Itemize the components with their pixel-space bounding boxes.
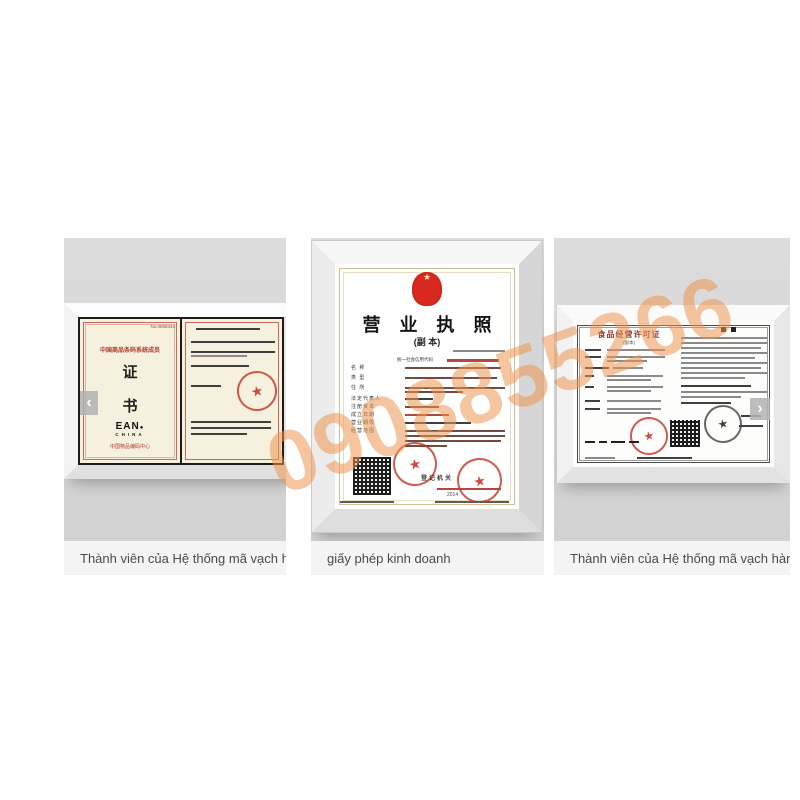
- member-line: 中国商品条码系统成员: [80, 345, 180, 354]
- license-title: 营 业 执 照: [335, 311, 519, 337]
- chevron-right-icon: ›: [757, 400, 762, 418]
- certificate-booklet: No.0658443 中国商品条码系统成员 证 书 EAN● CHINA 中国物…: [78, 317, 284, 465]
- org-line: 中国物品编码中心: [80, 443, 180, 450]
- booklet-right-page: ★: [182, 319, 282, 463]
- business-license: ★ 营 业 执 照 (副 本) 统一社会信用代码 名 称 类 型 住 所 法定代…: [335, 264, 519, 509]
- carousel-slide-business-license[interactable]: ★ 营 业 执 照 (副 本) 统一社会信用代码 名 称 类 型 住 所 法定代…: [311, 238, 544, 541]
- food-license: 食品经营许可证 (副本): [573, 321, 774, 467]
- slide-caption-1: Thành viên của Hệ thống mã vạch hàng h..…: [64, 541, 286, 575]
- picture-frame: ★ 营 业 执 照 (副 本) 统一社会信用代码 名 称 类 型 住 所 法定代…: [312, 241, 542, 532]
- ean-logo-dot: ●: [140, 425, 145, 431]
- license-title: 食品经营许可证: [583, 329, 675, 340]
- carousel-slide-food-license[interactable]: 食品经营许可证 (副本): [554, 238, 790, 541]
- national-emblem-icon: ★: [412, 272, 442, 306]
- ean-logo-sub: CHINA: [80, 432, 180, 437]
- license-subtitle: (副 本): [335, 335, 519, 348]
- prev-button[interactable]: ‹: [80, 391, 98, 415]
- next-button[interactable]: ›: [750, 398, 770, 420]
- picture-frame: 食品经营许可证 (副本): [557, 305, 790, 483]
- license-subtitle: (副本): [583, 340, 675, 346]
- qr-code: [353, 457, 391, 495]
- slide-caption-2: giấy phép kinh doanh: [311, 541, 544, 575]
- certificate-serial: No.0658443: [150, 324, 175, 329]
- ean-logo: EAN●: [80, 421, 180, 432]
- seal-char-top: 证: [80, 361, 180, 382]
- license-year: 2014: [447, 492, 458, 498]
- chevron-left-icon: ‹: [86, 394, 91, 412]
- carousel-slide-barcode-certificate[interactable]: No.0658443 中国商品条码系统成员 证 书 EAN● CHINA 中国物…: [64, 238, 286, 541]
- qr-code: [670, 420, 700, 447]
- credit-code-label: 统一社会信用代码: [397, 357, 433, 363]
- registrar-label: 登记机关: [421, 473, 453, 482]
- slide-caption-3: Thành viên của Hệ thống mã vạch hàng h..…: [554, 541, 790, 575]
